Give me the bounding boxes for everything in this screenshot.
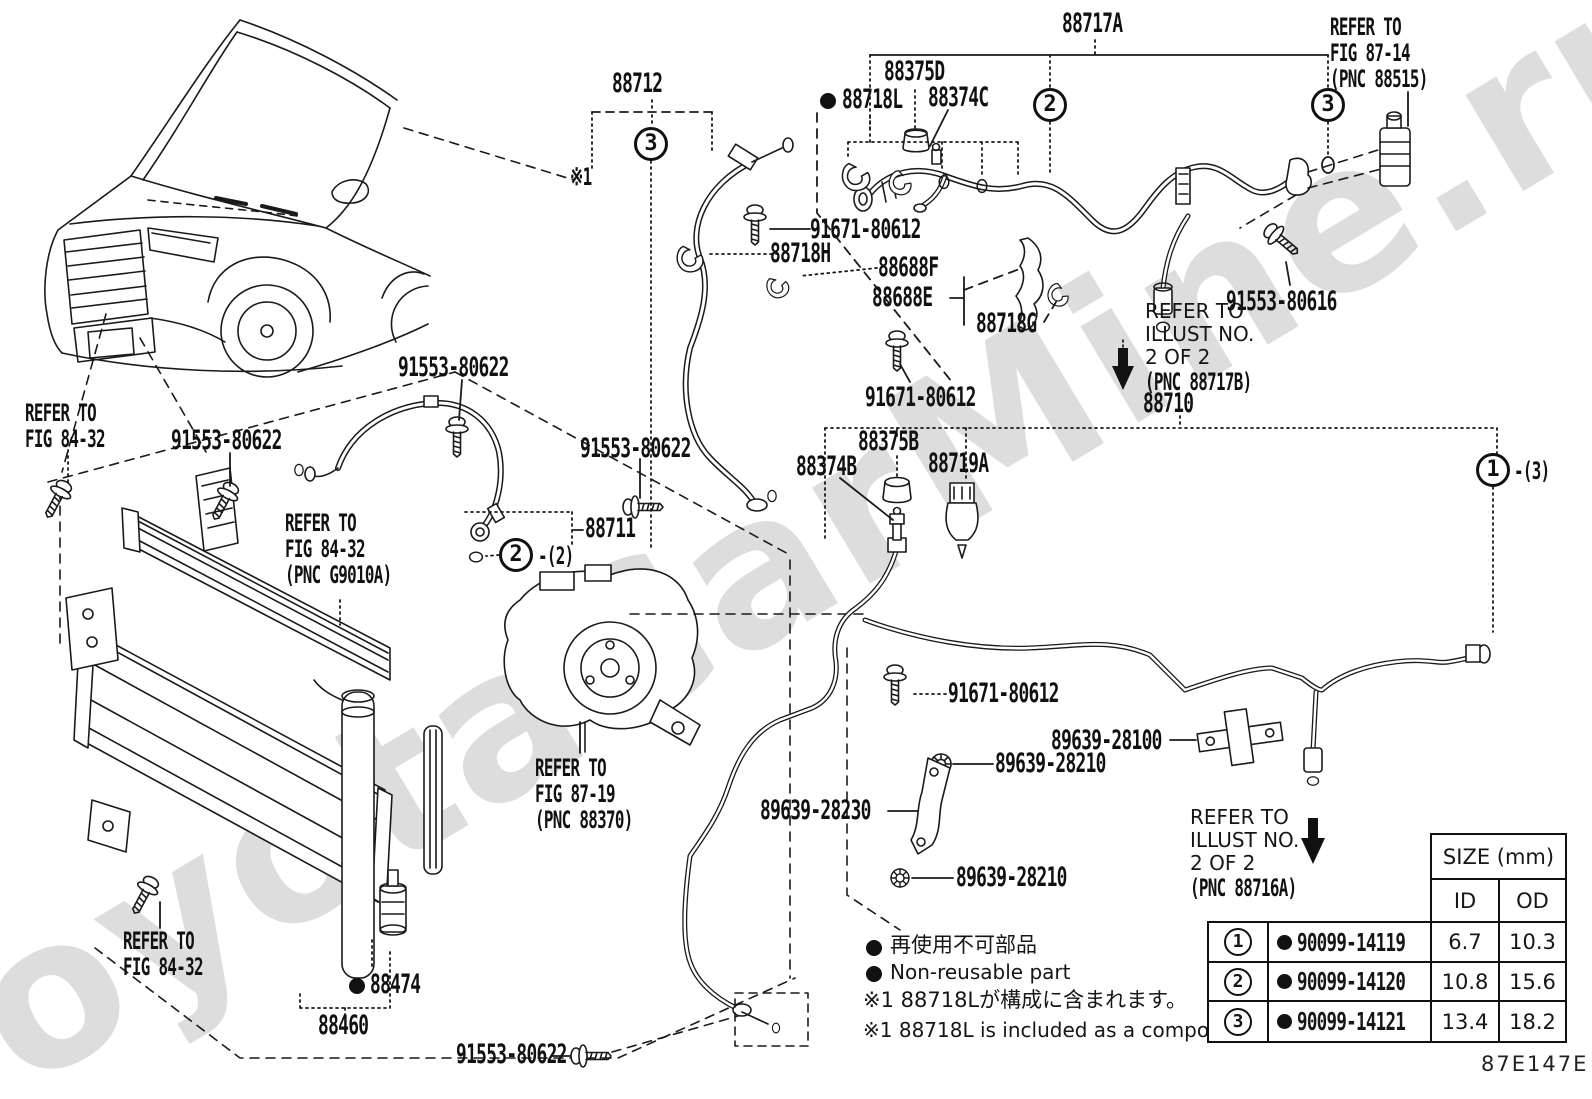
diagram-code: 87E147E (1481, 1052, 1588, 1076)
note-illust-88717B: REFER TO ILLUST NO. 2 OF 2 (1145, 300, 1254, 369)
note-line: 2 OF 2 (1145, 346, 1254, 369)
vehicle-sketch (45, 20, 574, 472)
legend-dot (866, 966, 882, 982)
legend-en: Non-reusable part (890, 961, 1070, 984)
part-label-88710: 88710 (1143, 390, 1193, 417)
callout-2-qty: -(2) (538, 543, 574, 569)
part-label-91553-80622-4: 91553-80622 (456, 1041, 567, 1068)
part-label-88719A: 88719A (928, 450, 988, 477)
part-label-88474: 88474 (370, 971, 420, 998)
part-label-88460: 88460 (318, 1012, 368, 1039)
note-line: FIG 87-14 (1330, 40, 1428, 66)
table-header-id: ID (1430, 878, 1500, 924)
callout-2: 2 (1224, 968, 1252, 996)
table-row-od: 15.6 (1498, 961, 1567, 1003)
part-label-88718H: 88718H (770, 240, 830, 267)
footnote-marker-1: ※1 (570, 164, 591, 190)
part-label-88374C: 88374C (928, 84, 988, 111)
note-fig-87-19: REFER TO FIG 87-19 (PNC 88370) (535, 755, 633, 833)
note-line: REFER TO (1190, 806, 1299, 829)
part-label-91553-80622-2: 91553-80622 (398, 354, 509, 381)
note-line: 2 OF 2 (1190, 852, 1299, 875)
table-row-callout: 1 (1207, 921, 1269, 963)
table-row-id: 13.4 (1430, 1000, 1500, 1043)
non-reusable-dot (820, 93, 836, 109)
callout-2: 2 (1033, 88, 1067, 122)
note-line: FIG 84-32 (25, 426, 105, 452)
note-line: REFER TO (1145, 300, 1254, 323)
part-number: 90099-14119 (1297, 928, 1405, 957)
table-row-callout: 2 (1207, 961, 1269, 1003)
legend-jp: 再使用不可部品 (890, 934, 1037, 957)
note-fig-84-32-bottom: REFER TO FIG 84-32 (123, 928, 203, 980)
legend-footnote-jp: ※1 88718Lが構成に含まれます。 (863, 989, 1187, 1012)
callout-1: 1 (1476, 453, 1510, 487)
part-label-89639-28210-1: 89639-28210 (995, 750, 1106, 777)
part-label-88718G: 88718G (976, 310, 1036, 337)
part-number: 90099-14121 (1297, 1007, 1405, 1036)
part-label-88712: 88712 (612, 70, 662, 97)
table-row-part: 90099-14120 (1267, 961, 1433, 1003)
part-label-88375D: 88375D (884, 58, 944, 85)
table-header-size: SIZE (mm) (1430, 833, 1567, 880)
part-label-88688E: 88688E (872, 284, 932, 311)
part-label-88717A: 88717A (1062, 10, 1122, 37)
note-line: REFER TO (1330, 14, 1428, 40)
legend-dot (866, 940, 882, 956)
note-line: REFER TO (535, 755, 633, 781)
note-line: REFER TO (285, 510, 392, 536)
part-label-89639-28210-2: 89639-28210 (956, 864, 1067, 891)
non-reusable-dot (1277, 974, 1292, 989)
callout-3: 3 (1224, 1008, 1252, 1036)
note-line: (PNC G9010A) (285, 562, 392, 588)
note-line: ILLUST NO. (1190, 829, 1299, 852)
table-row-part: 90099-14119 (1267, 921, 1433, 963)
note-line: (PNC 88515) (1330, 66, 1428, 92)
note-line: FIG 87-19 (535, 781, 633, 807)
note-pnc-88716A: (PNC 88716A) (1190, 875, 1297, 901)
part-label-91553-80622-1: 91553-80622 (171, 427, 282, 454)
part-label-88711: 88711 (585, 515, 635, 542)
table-row-part: 90099-14121 (1267, 1000, 1433, 1043)
compressor (504, 565, 865, 752)
note-line: REFER TO (25, 400, 105, 426)
callout-2: 2 (499, 538, 533, 572)
non-reusable-dot (1277, 935, 1292, 950)
part-number: 90099-14120 (1297, 967, 1405, 996)
note-fig-87-14: REFER TO FIG 87-14 (PNC 88515) (1330, 14, 1428, 92)
leader-lines (68, 40, 1497, 1056)
non-reusable-dot (1277, 1014, 1292, 1029)
table-header-od: OD (1498, 878, 1567, 924)
callout-3: 3 (634, 127, 668, 161)
table-row-callout: 3 (1207, 1000, 1269, 1043)
note-illust-88716A: REFER TO ILLUST NO. 2 OF 2 (1190, 806, 1299, 875)
table-row-od: 10.3 (1498, 921, 1567, 963)
note-line: ILLUST NO. (1145, 323, 1254, 346)
table-row-id: 6.7 (1430, 921, 1500, 963)
non-reusable-dot (349, 978, 365, 994)
part-label-91671-80612-2: 91671-80612 (865, 384, 976, 411)
part-label-88688F: 88688F (878, 254, 938, 281)
part-label-91671-80612-3: 91671-80612 (948, 680, 1059, 707)
note-line: (PNC 88370) (535, 807, 633, 833)
callout-1: 1 (1224, 928, 1252, 956)
note-line: FIG 84-32 (123, 954, 203, 980)
part-label-88374B: 88374B (796, 453, 856, 480)
note-fig-84-32-g9010a: REFER TO FIG 84-32 (PNC G9010A) (285, 510, 392, 588)
note-line: REFER TO (123, 928, 203, 954)
callout-1-qty: -(3) (1514, 458, 1550, 484)
callout-3: 3 (1311, 88, 1345, 122)
note-line: FIG 84-32 (285, 536, 392, 562)
table-row-id: 10.8 (1430, 961, 1500, 1003)
part-label-88375B: 88375B (858, 428, 918, 455)
part-label-89639-28230: 89639-28230 (760, 797, 871, 824)
legend-footnote-en: ※1 88718L is included as a component (863, 1019, 1255, 1042)
part-label-91553-80622-3: 91553-80622 (580, 435, 691, 462)
part-label-88718L: 88718L (842, 86, 902, 113)
parts-diagram-page: ToyotaCarMine.ru (0, 0, 1592, 1099)
table-row-od: 18.2 (1498, 1000, 1567, 1043)
note-fig-84-32-top: REFER TO FIG 84-32 (25, 400, 105, 452)
